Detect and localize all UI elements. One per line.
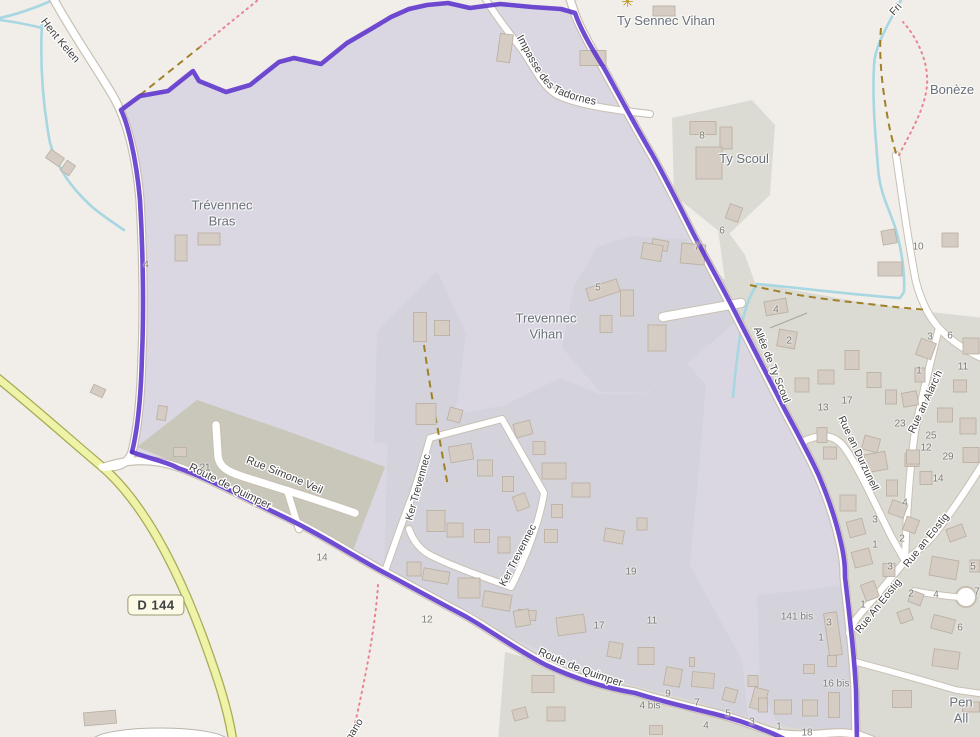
building [824, 447, 837, 459]
map-graphics: Hent Kelen Impasse des Tadornes Allée de… [0, 0, 980, 737]
building [867, 373, 881, 388]
building [475, 530, 490, 543]
building [690, 658, 695, 667]
building [748, 676, 758, 687]
building [407, 562, 421, 576]
building [604, 528, 625, 544]
building [503, 477, 514, 492]
building [840, 495, 856, 511]
building [552, 505, 563, 518]
building [416, 404, 436, 425]
building [907, 450, 920, 464]
building [803, 700, 818, 716]
building [650, 726, 663, 735]
building [478, 460, 493, 476]
building [691, 672, 714, 689]
building [878, 262, 902, 276]
building [920, 472, 932, 485]
building [893, 691, 912, 708]
building [828, 656, 837, 667]
building [915, 368, 925, 382]
building [641, 242, 663, 261]
building [572, 483, 590, 497]
building [804, 665, 815, 674]
building [533, 442, 545, 455]
building [556, 614, 586, 636]
building [175, 235, 187, 261]
building [818, 370, 834, 384]
building [513, 609, 531, 627]
building [846, 518, 866, 538]
building [621, 290, 634, 316]
building [887, 480, 898, 496]
building [547, 707, 565, 721]
building [607, 641, 623, 658]
route-badge-d144: D 144 [127, 595, 184, 616]
building [938, 408, 953, 422]
building [174, 448, 187, 457]
building [795, 378, 809, 392]
building [960, 418, 976, 434]
building [156, 405, 167, 420]
building [648, 325, 666, 351]
building [932, 649, 960, 669]
building [83, 710, 116, 726]
building [883, 564, 895, 577]
building [720, 127, 732, 149]
building [664, 667, 683, 688]
building [435, 321, 450, 336]
building [498, 537, 510, 553]
building [198, 233, 220, 245]
building [881, 229, 897, 245]
building [817, 428, 827, 443]
building [427, 511, 445, 532]
building [722, 687, 738, 703]
building [414, 313, 427, 342]
building [845, 351, 859, 370]
building [759, 698, 768, 712]
building [929, 556, 959, 579]
building [447, 407, 463, 423]
building [942, 233, 958, 247]
building [829, 693, 840, 718]
building [901, 391, 918, 407]
building [690, 122, 716, 135]
building [775, 700, 792, 714]
building [458, 578, 480, 598]
building [963, 338, 979, 354]
building [963, 448, 979, 463]
building [886, 390, 897, 404]
building [448, 443, 473, 463]
map-canvas[interactable]: Hent Kelen Impasse des Tadornes Allée de… [0, 0, 980, 737]
building [638, 648, 654, 665]
building [696, 147, 722, 179]
building [653, 6, 675, 16]
building [637, 518, 647, 530]
building [600, 316, 612, 333]
building [777, 329, 798, 349]
building [963, 702, 980, 712]
building [954, 380, 967, 392]
building [447, 523, 463, 537]
building [542, 463, 566, 479]
building [545, 530, 558, 543]
building [532, 676, 554, 693]
building [970, 560, 980, 572]
